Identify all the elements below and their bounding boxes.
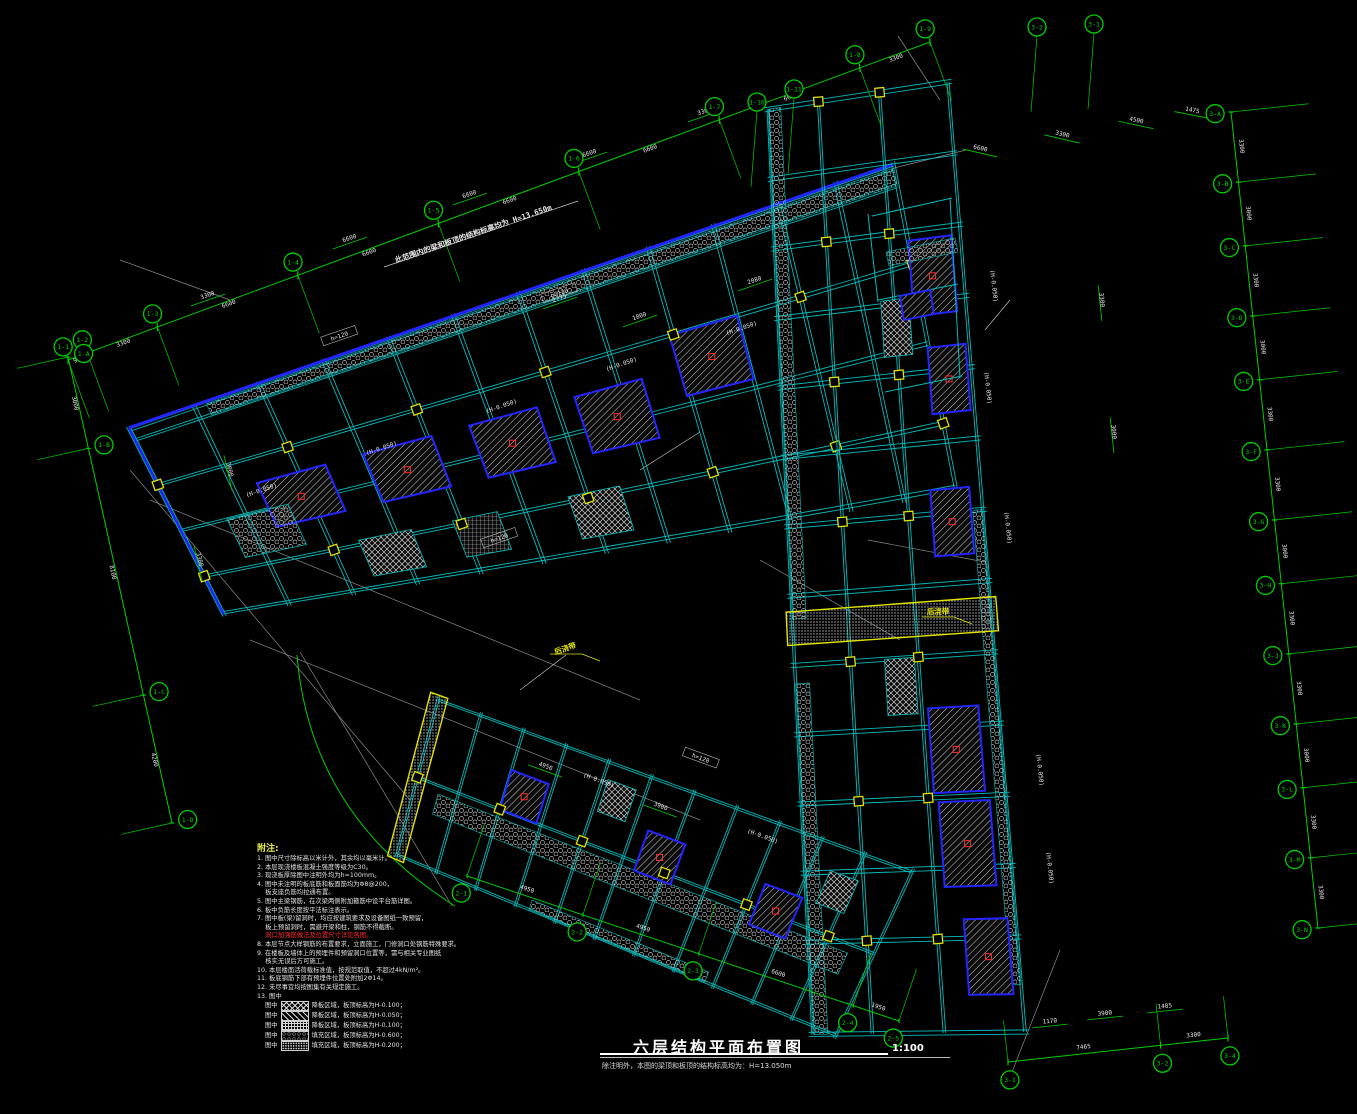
dim-value: 6600 — [770, 968, 786, 979]
hatched-slab-panel — [884, 657, 918, 715]
slab-level-label: (H-0.050) — [988, 269, 998, 302]
note-line: 3. 现浇板厚除图中注明外均为h=100mm。 — [257, 872, 472, 881]
legend-text: 填充区域，板顶标高为H-0.200； — [312, 1041, 406, 1051]
legend-prefix: 图中 — [265, 1041, 278, 1051]
notes-header: 附注: — [257, 841, 472, 854]
dim-value: 3000 — [1244, 206, 1253, 221]
legend-text: 降板区域，板顶标高为H-0.100； — [312, 1001, 406, 1011]
dim-value: 3300 — [1186, 1031, 1202, 1040]
dim-value: 6600 — [221, 298, 237, 310]
dim-value: 2080 — [747, 275, 763, 286]
axis-extension-line — [930, 42, 951, 100]
note-line: 11. 板底钢筋下部有预埋件位置处附加2Φ14。 — [257, 975, 472, 984]
slope-note-underline — [384, 201, 578, 267]
note-line: 核实无误后方可施工。 — [257, 958, 472, 967]
leader-line — [985, 300, 1010, 330]
axis-bubble-label: 3-E — [1238, 378, 1250, 386]
dim-value: 7465 — [1076, 1043, 1092, 1052]
sunken-slab-panel — [928, 705, 985, 793]
axis-extension-line — [1088, 33, 1094, 109]
slab-level-label: (H-0.050) — [1002, 511, 1012, 544]
note-line: 8. 本层节点大样钢筋的布置要求，立面施工，门修洞口处钢筋特殊要求。 — [257, 941, 472, 950]
column-mark — [914, 652, 924, 662]
axis-extension-line — [1031, 36, 1037, 112]
column-mark — [282, 441, 293, 452]
column-mark — [933, 934, 943, 944]
dim-value: 6600 — [462, 189, 478, 200]
axis-extension-line — [899, 969, 917, 1021]
dim-value: 6600 — [582, 148, 598, 159]
hatch-legend: 图中降板区域，板顶标高为H-0.100；图中降板区域，板顶标高为H-0.050；… — [257, 1001, 472, 1051]
note-line: 2. 本层现浇楼板混凝土强度等级为C30。 — [257, 864, 472, 873]
column-mark — [838, 517, 848, 527]
legend-text: 填充区域，板顶标高为H-0.600； — [312, 1031, 406, 1041]
legend-row: 图中填充区域，板顶标高为H-0.600； — [265, 1031, 472, 1041]
axis-bubble-label: 1-6 — [568, 155, 580, 163]
column-mark — [822, 237, 832, 247]
axis-bubble-label: 3-4 — [1224, 1052, 1236, 1060]
legend-text: 降板区域，板顶标高为H-0.100； — [312, 1021, 406, 1031]
dim-value: 1170 — [1042, 1017, 1057, 1026]
axis-extension-line — [1281, 575, 1357, 583]
axis-bubble-label: 3-L — [1281, 786, 1293, 794]
dim-value: 3900 — [1097, 1009, 1112, 1018]
axis-bubble-label: 1-A — [78, 350, 90, 358]
column-mark — [904, 511, 914, 521]
column-mark — [862, 936, 872, 946]
axis-extension-line — [1260, 371, 1338, 379]
axis-extension-line — [1267, 442, 1345, 450]
column-mark — [875, 88, 885, 98]
slab-level-label: (H-0.050) — [605, 356, 638, 373]
axis-bubble-label: 3-C — [1223, 244, 1235, 252]
column-mark — [582, 492, 594, 503]
axis-extension-line — [1318, 920, 1357, 928]
legend-prefix: 图中 — [265, 1031, 278, 1041]
axis-extension-line — [1238, 174, 1316, 182]
dim-value: 1800 — [632, 311, 648, 322]
dim-value: 3300 — [1273, 477, 1282, 492]
slab-level-label: (H-0.050) — [582, 772, 615, 790]
dim-value: 3300 — [1237, 139, 1246, 154]
note-line: 5. 图中主梁钢筋，在次梁两侧附加箍筋中设平台筋详图。 — [257, 898, 472, 907]
axis-bubble-label: 3-M — [1289, 856, 1301, 864]
axis-extension-line — [438, 223, 459, 281]
legend-prefix: 图中 — [265, 1021, 278, 1031]
note-line: 1. 图中尺寸除标高以米计外，其余均以毫米计。 — [257, 855, 472, 864]
axis-bubble-label: 2-5 — [887, 1034, 899, 1042]
note-line: 12. 未尽事宜均按图集有关规定施工。 — [257, 984, 472, 993]
dim-value: 3300 — [1251, 273, 1260, 288]
column-mark — [152, 479, 164, 490]
axis-bubble-label: 3-B — [1217, 180, 1229, 188]
drawing-subtitle: 除注明外，本图的梁顶和板顶的结构标高均为：H=13.050m — [602, 1061, 791, 1071]
dim-value: 6600 — [361, 247, 377, 259]
slab-level-label: (H-0.050) — [982, 371, 992, 404]
axis-extension-line — [1289, 646, 1357, 654]
dim-value: 3000 — [1109, 424, 1118, 439]
title-underline-thick — [600, 1053, 888, 1055]
note-line: 13. 图中 — [257, 993, 472, 1002]
hatched-slab-panel — [359, 529, 427, 576]
axis-bubble-label: 2-2 — [571, 928, 583, 936]
dim-value: 3300 — [194, 552, 204, 568]
column-mark — [741, 899, 753, 911]
column-mark — [830, 377, 840, 387]
axis-extension-line — [1275, 512, 1353, 520]
axis-extension-line — [17, 357, 68, 368]
dots-hatch-swatch — [281, 1041, 309, 1051]
note-line: 9. 在楼板及墙体上的预埋件和预留洞口位置等，需与相关专业图纸 — [257, 950, 472, 959]
dim-value: 3300 — [1266, 407, 1275, 422]
axis-bubble-label: 1-10 — [749, 98, 765, 106]
hatched-slab-panel — [816, 871, 858, 914]
beam-line — [787, 583, 992, 599]
note-line: 7. 图中板(梁)留洞时，均应按建筑要求及设备图纸一致预留， — [257, 915, 472, 924]
dim-value: 4200 — [149, 752, 159, 768]
sunken-slab-panel — [939, 800, 997, 887]
axis-extension-line — [38, 448, 89, 459]
honey-hatch-swatch — [281, 1031, 309, 1041]
axis-bubble-label: 1-8 — [849, 51, 861, 59]
cad-drawing-stage: 9003300660066006600660066003300330030003… — [0, 0, 1357, 1114]
corridor-beam — [868, 214, 878, 302]
column-mark — [884, 229, 894, 239]
column-mark — [854, 796, 864, 806]
dimension-chain — [1008, 1038, 1228, 1062]
construction-line — [150, 500, 640, 700]
dim-value: 3300 — [1316, 885, 1325, 900]
slab-level-label: h=120 — [691, 752, 711, 765]
axis-extension-line — [1223, 996, 1228, 1038]
legend-prefix: 图中 — [265, 1001, 278, 1011]
note-line: 板支座负筋均拉通布置。 — [257, 889, 472, 898]
axis-extension-line — [298, 275, 319, 333]
column-mark — [540, 366, 552, 377]
general-notes-block: 附注: 1. 图中尺寸除标高以米计外，其余均以毫米计。2. 本层现浇楼板混凝土强… — [257, 841, 472, 1051]
legend-row: 图中降板区域，板顶标高为H-0.100； — [265, 1001, 472, 1011]
axis-bubble-label: 2-4 — [842, 1019, 854, 1027]
legend-row: 图中填充区域，板顶标高为H-0.200； — [265, 1041, 472, 1051]
dim-value: 3300 — [200, 290, 216, 301]
axis-bubble-label: 1-B — [98, 441, 110, 449]
axis-bubble-label: 3-F — [1245, 448, 1257, 456]
axis-extension-line — [1003, 1020, 1008, 1062]
dim-value: 8100 — [108, 565, 118, 581]
axis-bubble-label: 1-7 — [709, 103, 721, 111]
axis-bubble-label: 1-9 — [919, 25, 931, 33]
dim-value: 6600 — [342, 233, 358, 244]
axis-extension-line — [1296, 716, 1357, 724]
legend-prefix: 图中 — [265, 1011, 278, 1021]
sunken-slab-panel — [574, 379, 659, 454]
beam-line — [809, 1034, 1030, 1036]
drawing-scale: 1:100 — [892, 1043, 924, 1054]
axis-bubble-label: 1-4 — [287, 258, 299, 266]
dim-value: 1485 — [1157, 1002, 1172, 1011]
column-mark — [894, 370, 904, 380]
column-mark — [814, 97, 824, 107]
axis-bubble-label: 1-1 — [57, 343, 69, 351]
column-mark — [846, 657, 856, 667]
dim-value: 3300 — [1309, 815, 1318, 830]
column-mark — [328, 544, 339, 555]
slab-level-label: (H-0.050) — [485, 398, 518, 415]
axis-bubble-label: 3-H — [1260, 582, 1272, 590]
notes-lines: 1. 图中尺寸除标高以米计外，其余均以毫米计。2. 本层现浇楼板混凝土强度等级为… — [257, 855, 472, 1001]
cross-hatch-swatch — [281, 1001, 309, 1011]
axis-bubble-label: 1-D — [182, 816, 194, 824]
axis-extension-line — [1253, 308, 1331, 316]
sunken-slab-panel — [900, 290, 934, 320]
axis-bubble-label: 2-3 — [687, 967, 699, 975]
legend-row: 图中降板区域，板顶标高为H-0.100； — [265, 1021, 472, 1031]
dim-value: 3300 — [888, 52, 904, 64]
axis-extension-line — [93, 695, 144, 706]
dim-value: 3300 — [1295, 681, 1304, 696]
axis-bubble-label: 3-1 — [1088, 20, 1100, 28]
axis-bubble-label: 3-G — [1253, 518, 1265, 526]
dim-value: 3300 — [1097, 292, 1106, 307]
dim-value: 3900 — [653, 801, 669, 813]
axis-bubble-label: 3-2 — [1031, 23, 1043, 31]
column-mark — [923, 793, 933, 803]
legend-text: 降板区域，板顶标高为H-0.050； — [312, 1011, 406, 1021]
edge-beam-blue — [129, 428, 224, 614]
axis-bubble-label: 1-5 — [428, 207, 440, 215]
note-line: 6. 板中负筋长度按平法标注表示。 — [257, 907, 472, 916]
note-line: 洞口加强筋做法及位置尺寸详见各图。 — [257, 932, 472, 941]
beam-line — [949, 82, 1026, 1032]
column-mark — [411, 404, 422, 416]
sunken-slab-panel — [469, 407, 556, 477]
dim-value: 3300 — [1287, 611, 1296, 626]
sunken-slab-panel — [500, 770, 549, 823]
axis-bubble-label: 3-1 — [1004, 1076, 1016, 1084]
column-mark — [668, 329, 679, 340]
column-mark — [576, 835, 588, 847]
axis-bubble-label: 3-K — [1274, 722, 1286, 730]
axis-extension-line — [87, 353, 108, 411]
axis-extension-line — [1231, 104, 1309, 112]
hatched-slab-panel — [568, 486, 634, 539]
axis-extension-line — [579, 172, 600, 230]
column-mark — [456, 518, 467, 529]
axis-extension-line — [1311, 850, 1357, 858]
dim-value: 6600 — [642, 143, 658, 155]
diag-hatch-swatch — [281, 1011, 309, 1021]
axis-extension-line — [121, 823, 172, 834]
beam-line — [130, 426, 227, 616]
axis-bubble-label: 3-D — [1231, 314, 1243, 322]
dim-value: 3000 — [1280, 544, 1289, 559]
title-underline-thin — [600, 1057, 950, 1058]
post-cast-joint-band — [786, 597, 998, 646]
joint-leader — [582, 654, 600, 661]
sunken-slab-panel — [964, 918, 1014, 995]
dim-value: 3000 — [70, 396, 80, 412]
axis-bubble-label: 1-11 — [786, 85, 802, 93]
axis-bubble-label: 3-2 — [1157, 1060, 1169, 1068]
legend-row: 图中降板区域，板顶标高为H-0.050； — [265, 1011, 472, 1021]
axis-extension-line — [719, 120, 740, 178]
column-mark — [795, 291, 806, 302]
slab-level-label: h=120 — [330, 330, 350, 343]
dim-value: 3300 — [115, 337, 131, 349]
dim-value: 3000 — [1258, 340, 1267, 355]
post-cast-joint-label: 后浇带 — [927, 606, 950, 616]
axis-bubble-label: 1-C — [153, 688, 165, 696]
axis-extension-line — [157, 327, 178, 385]
beam-line — [126, 427, 223, 617]
column-mark — [938, 418, 949, 429]
slab-level-label: (H-0.050) — [1044, 851, 1054, 884]
sunken-slab-panel — [930, 487, 974, 557]
beam-line — [768, 155, 958, 182]
axis-extension-line — [1245, 238, 1323, 246]
axis-bubble-label: 1-3 — [147, 310, 159, 318]
axis-bubble-label: 3-N — [1296, 926, 1308, 934]
dim-value: 4950 — [519, 884, 535, 895]
axis-extension-line — [751, 111, 757, 187]
dim-value: 4950 — [538, 761, 554, 773]
slab-level-label: (H-0.050) — [746, 828, 779, 846]
beam-line — [787, 578, 992, 594]
slab-level-label: (H-0.050) — [1034, 753, 1044, 786]
axis-extension-line — [1303, 779, 1357, 787]
dim-value: 6600 — [502, 195, 518, 207]
grid-hatch-swatch — [281, 1021, 309, 1031]
axis-extension-line — [788, 98, 794, 174]
cad-canvas: 9003300660066006600660066003300330030003… — [0, 0, 1357, 1114]
axis-bubble-label: 1-2 — [76, 336, 88, 344]
axis-bubble-label: 3-J — [1267, 652, 1279, 660]
corridor-beam — [872, 198, 952, 216]
axis-bubble-label: 3-A — [1209, 110, 1221, 118]
column-mark — [707, 467, 718, 478]
dim-value: 3000 — [1302, 748, 1311, 763]
